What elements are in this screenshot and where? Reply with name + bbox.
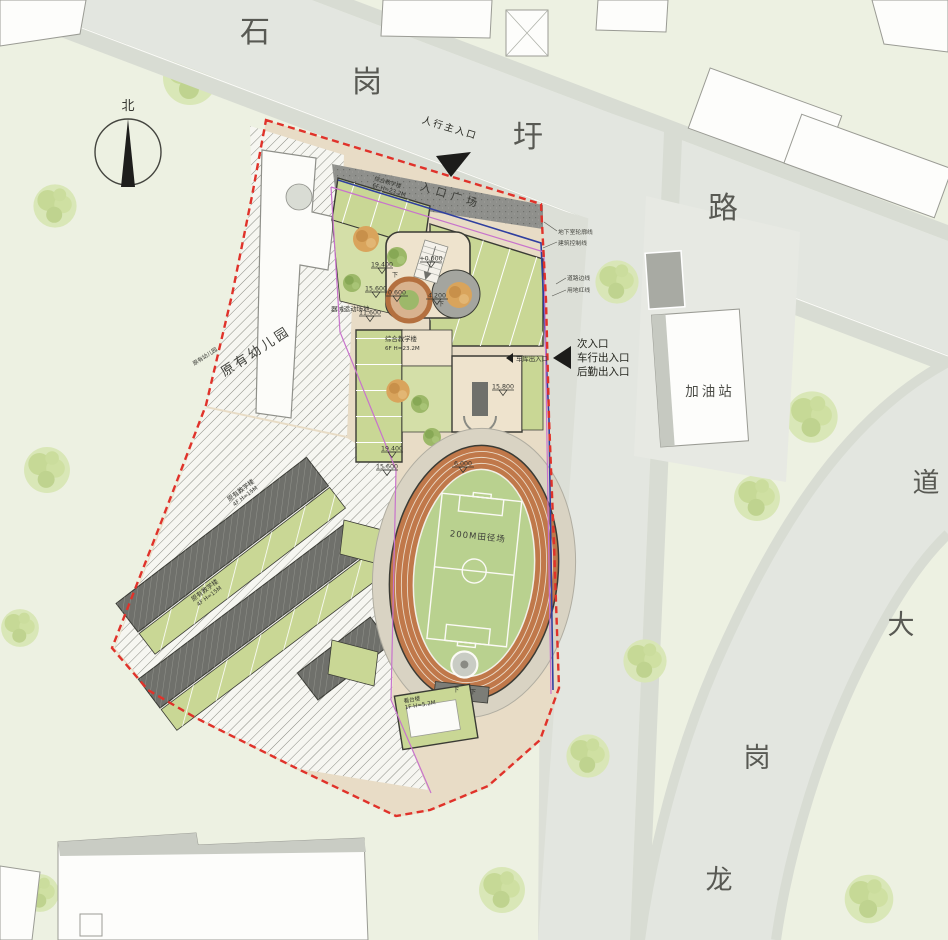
elevation-value: 19.400 bbox=[371, 262, 393, 269]
road-char: 道 bbox=[913, 468, 940, 499]
tree-icon bbox=[479, 867, 525, 913]
garage-entrance-label: 车库出入口 bbox=[516, 354, 548, 363]
tree-icon bbox=[595, 260, 638, 303]
road-char: 岗 bbox=[352, 65, 382, 100]
elevation-value: 19.400 bbox=[381, 446, 403, 453]
small-tree-icon bbox=[411, 395, 429, 413]
teaching-spec: 6F H=23.2M bbox=[385, 346, 420, 352]
down-mark: 下 bbox=[470, 689, 476, 696]
tree-icon bbox=[786, 391, 837, 442]
elevation-value: 15.800 bbox=[492, 384, 514, 391]
road-char: 路 bbox=[708, 191, 738, 226]
building-court-circle bbox=[286, 184, 312, 210]
tree-icon bbox=[734, 475, 780, 521]
tree-icon bbox=[33, 184, 76, 227]
building-block bbox=[381, 0, 492, 38]
gas-station: 加油站 bbox=[634, 196, 800, 482]
tree-icon bbox=[623, 639, 666, 682]
tree-icon bbox=[566, 734, 609, 777]
site-plan-drawing: 加油站 原有幼儿园 原有幼儿园 bbox=[0, 0, 948, 940]
secondary-entrance-line1: 次入口 bbox=[577, 337, 609, 350]
ramp-slot bbox=[472, 382, 488, 416]
gas-building bbox=[652, 309, 749, 447]
tree-icon bbox=[24, 447, 70, 493]
elevation-value: 4.200 bbox=[428, 293, 446, 300]
teaching-name: 综合教学楼 bbox=[385, 334, 418, 343]
road-char: 圩 bbox=[513, 120, 543, 155]
down-mark: 下 bbox=[453, 687, 459, 694]
orange-tree-icon bbox=[446, 282, 472, 308]
grandstand-building: 看台楼 1F H=5.2M bbox=[394, 684, 478, 749]
building-x-roof bbox=[506, 10, 548, 56]
elevation-value: 6.000 bbox=[454, 461, 472, 468]
basement-outline-label: 地下室轮廓线 bbox=[558, 228, 593, 236]
tree-icon bbox=[1, 609, 39, 647]
road-char: 龙 bbox=[706, 865, 733, 896]
elevation-value: 11.600 bbox=[359, 310, 381, 317]
gas-kiosk bbox=[645, 251, 685, 309]
building-block bbox=[80, 914, 102, 936]
building-control-label: 建筑控制线 bbox=[558, 239, 587, 247]
elevation-value: 15.600 bbox=[376, 464, 398, 471]
road-edge-label: 道路边线 bbox=[567, 274, 590, 282]
road-char: 大 bbox=[888, 610, 915, 641]
site-plan-page: 加油站 原有幼儿园 原有幼儿园 bbox=[0, 0, 948, 940]
road-char: 岗 bbox=[744, 743, 771, 774]
north-label: 北 bbox=[121, 99, 134, 114]
down-mark: 下 bbox=[392, 272, 398, 279]
down-mark: 下 bbox=[438, 301, 444, 308]
elevation-value: 15.600 bbox=[365, 286, 387, 293]
tree-icon bbox=[845, 875, 894, 924]
small-tree-icon bbox=[343, 274, 361, 292]
secondary-entrance-line2: 车行出入口 bbox=[577, 351, 630, 364]
elevation-value: +0.000 bbox=[419, 256, 442, 263]
building-block bbox=[596, 0, 668, 32]
orange-tree-icon bbox=[353, 226, 379, 252]
site-red-line-label: 用地红线 bbox=[567, 286, 590, 294]
orange-tree-icon bbox=[386, 379, 409, 402]
secondary-entrance-line3: 后勤出入口 bbox=[577, 365, 630, 378]
gas-station-label: 加油站 bbox=[685, 384, 735, 400]
green-strip-east bbox=[522, 356, 543, 430]
elevation-value: 0.600 bbox=[388, 290, 406, 297]
road-char: 石 bbox=[240, 15, 270, 50]
